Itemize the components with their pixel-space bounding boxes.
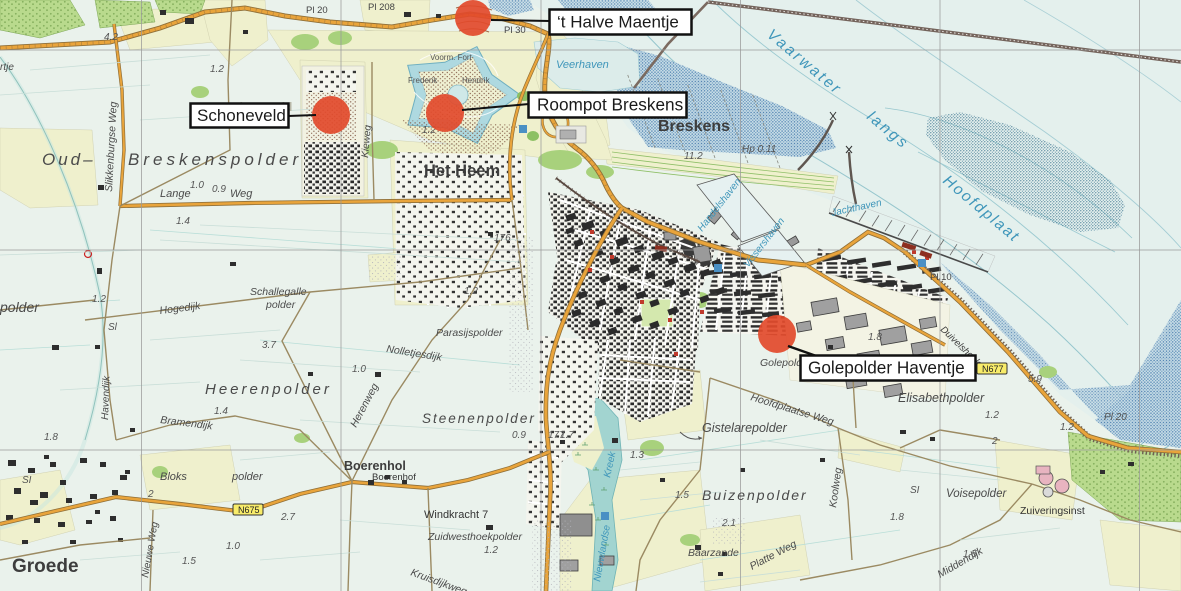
svg-text:Golepolder Haventje: Golepolder Haventje — [808, 358, 965, 378]
svg-text:SI: SI — [22, 475, 32, 486]
svg-text:polder: polder — [231, 471, 264, 483]
svg-text:rtje: rtje — [0, 62, 14, 73]
svg-text:Zuidwesthoekpolder: Zuidwesthoekpolder — [427, 531, 522, 543]
svg-text:1.4: 1.4 — [214, 406, 228, 417]
svg-text:Het Heem: Het Heem — [424, 162, 500, 180]
svg-text:Gistelarepolder: Gistelarepolder — [702, 421, 788, 435]
svg-text:1.3: 1.3 — [630, 450, 644, 461]
svg-text:Oud–: Oud– — [42, 150, 96, 169]
svg-text:0.9: 0.9 — [212, 184, 226, 195]
svg-text:2.1: 2.1 — [721, 518, 736, 529]
svg-text:1.2: 1.2 — [1060, 422, 1074, 433]
svg-text:Breskenspolder: Breskenspolder — [128, 150, 302, 169]
svg-text:Hp 0.11: Hp 0.11 — [742, 144, 776, 155]
svg-text:Zuiveringsinst: Zuiveringsinst — [1020, 505, 1085, 517]
svg-text:Veerhaven: Veerhaven — [556, 59, 609, 71]
svg-text:1.2: 1.2 — [210, 64, 224, 75]
svg-text:Pl 20: Pl 20 — [1104, 412, 1127, 423]
svg-text:Elisabethpolder: Elisabethpolder — [898, 391, 985, 405]
svg-text:Bloks: Bloks — [160, 471, 187, 483]
svg-text:Pl 208: Pl 208 — [368, 2, 395, 13]
svg-text:4.2: 4.2 — [104, 32, 118, 43]
svg-text:1.8: 1.8 — [44, 432, 58, 443]
svg-text:1.0: 1.0 — [190, 180, 204, 191]
svg-text:N677: N677 — [982, 364, 1004, 374]
svg-text:Parasijspolder: Parasijspolder — [436, 327, 503, 339]
svg-text:Havendijk: Havendijk — [100, 375, 113, 420]
svg-text:Heerenpolder: Heerenpolder — [205, 381, 332, 398]
svg-text:Voorm. Fort: Voorm. Fort — [430, 53, 473, 62]
svg-text:Baarzande: Baarzande — [688, 547, 739, 559]
svg-text:Lange: Lange — [160, 188, 191, 200]
svg-text:2: 2 — [991, 436, 998, 447]
svg-text:Voisepolder: Voisepolder — [946, 488, 1007, 500]
svg-text:polder: polder — [265, 299, 296, 311]
svg-text:1.5: 1.5 — [182, 556, 196, 567]
svg-text:176: 176 — [494, 233, 511, 244]
svg-text:11.2: 11.2 — [684, 151, 703, 162]
svg-text:1.2: 1.2 — [484, 545, 498, 556]
svg-text:Boerenhol: Boerenhol — [344, 459, 406, 473]
svg-text:1.8: 1.8 — [890, 512, 904, 523]
svg-text:Steenenpolder: Steenenpolder — [422, 411, 536, 426]
svg-text:Pl 30: Pl 30 — [504, 25, 526, 36]
svg-text:Roompot Breskens: Roompot Breskens — [537, 95, 683, 115]
svg-text:Pl 10: Pl 10 — [930, 272, 952, 283]
svg-text:N675: N675 — [238, 505, 260, 515]
svg-text:1.2: 1.2 — [985, 410, 999, 421]
svg-text:Windkracht 7: Windkracht 7 — [424, 509, 488, 521]
svg-text:Boerenhof: Boerenhof — [372, 472, 416, 483]
svg-text:3.7: 3.7 — [262, 340, 276, 351]
svg-text:1.2: 1.2 — [92, 294, 106, 305]
svg-text:5.9: 5.9 — [1028, 374, 1042, 385]
svg-text:1.5: 1.5 — [963, 549, 977, 560]
svg-text:2.7: 2.7 — [280, 512, 295, 523]
svg-text:177: 177 — [548, 430, 565, 441]
svg-text:Pl 20: Pl 20 — [306, 5, 328, 16]
svg-text:1.8: 1.8 — [868, 332, 882, 343]
svg-text:1.0: 1.0 — [352, 364, 366, 375]
svg-text:2: 2 — [147, 489, 154, 500]
svg-text:1.0: 1.0 — [226, 541, 240, 552]
svg-text:Schoneveld: Schoneveld — [197, 106, 286, 125]
svg-text:0.9: 0.9 — [512, 430, 526, 441]
svg-text:1.2: 1.2 — [464, 286, 478, 297]
svg-text:Sl: Sl — [108, 322, 118, 333]
svg-text:Groede: Groede — [12, 556, 79, 577]
svg-text:Weg: Weg — [230, 188, 253, 200]
svg-text:polder: polder — [0, 299, 40, 315]
svg-text:SI: SI — [910, 485, 920, 496]
svg-text:1.5: 1.5 — [675, 490, 689, 501]
svg-text:‘t Halve Maentje: ‘t Halve Maentje — [557, 13, 679, 32]
svg-text:Frederik: Frederik — [408, 76, 438, 85]
svg-text:Buizenpolder: Buizenpolder — [702, 487, 808, 503]
svg-text:Breskens: Breskens — [658, 118, 730, 135]
svg-text:1.4: 1.4 — [176, 216, 190, 227]
svg-text:Schallegalle: Schallegalle — [250, 286, 307, 298]
svg-text:Hendrik: Hendrik — [462, 76, 491, 85]
